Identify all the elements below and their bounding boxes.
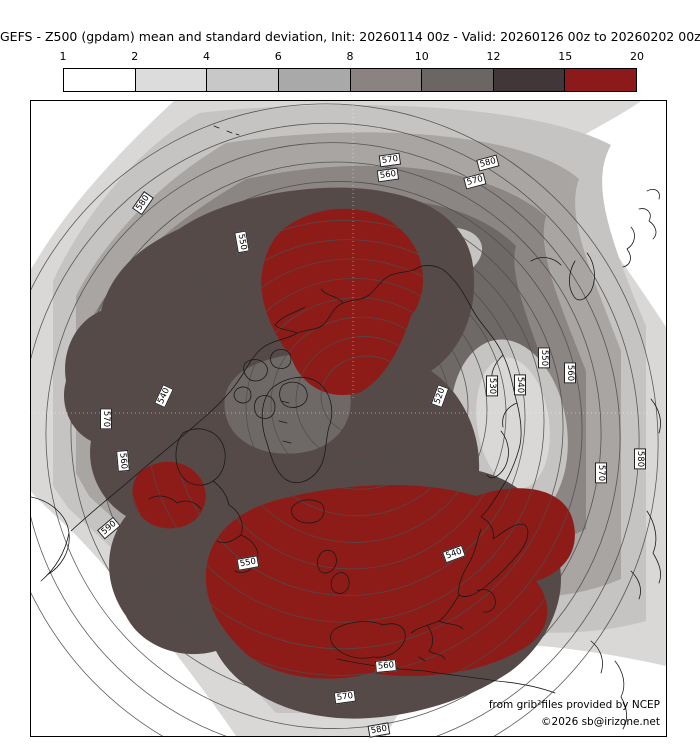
- contour-label-560: 560: [564, 362, 576, 383]
- credits: from grib²files provided by NCEP ©2026 s…: [489, 697, 660, 730]
- colorbar-swatch-2: [136, 69, 208, 91]
- coast-japan: [623, 189, 659, 267]
- colorbar-swatch-6: [422, 69, 494, 91]
- colorbar-tick: 20: [630, 50, 644, 63]
- contour-label-550: 550: [538, 347, 550, 368]
- credits-source: from grib²files provided by NCEP: [489, 697, 660, 713]
- map-svg: [31, 101, 666, 736]
- stddev-shading: [31, 101, 666, 736]
- contour-label-560: 560: [375, 659, 397, 673]
- contour-label-530: 530: [486, 375, 498, 396]
- colorbar-swatch-4: [279, 69, 351, 91]
- colorbar-tick: 2: [131, 50, 138, 63]
- colorbar-swatch-8: [565, 69, 636, 91]
- colorbar-swatch-7: [494, 69, 566, 91]
- colorbar-tick-row: 1246810121520: [63, 50, 637, 64]
- colorbar-tick: 8: [347, 50, 354, 63]
- colorbar: [63, 68, 637, 92]
- colorbar-tick: 4: [203, 50, 210, 63]
- contour-label-560: 560: [116, 450, 130, 472]
- colorbar-tick: 6: [275, 50, 282, 63]
- colorbar-swatch-1: [64, 69, 136, 91]
- map-plot-area: 5705605805705805505405705605205305405505…: [30, 100, 667, 737]
- chart-title: GEFS - Z500 (gpdam) mean and standard de…: [0, 29, 700, 44]
- colorbar-tick: 10: [415, 50, 429, 63]
- colorbar-tick: 12: [487, 50, 501, 63]
- colorbar-swatch-5: [351, 69, 423, 91]
- colorbar-tick: 15: [558, 50, 572, 63]
- colorbar-swatch-3: [207, 69, 279, 91]
- colorbar-tick: 1: [60, 50, 67, 63]
- credits-copyright: ©2026 sb@irizone.net: [489, 714, 660, 730]
- contour-label-570: 570: [100, 408, 112, 429]
- contour-label-580: 580: [634, 448, 646, 469]
- contour-label-540: 540: [514, 374, 526, 395]
- weather-chart-page: { "title": "GEFS - Z500 (gpdam) mean and…: [0, 0, 700, 748]
- contour-label-570: 570: [595, 462, 607, 483]
